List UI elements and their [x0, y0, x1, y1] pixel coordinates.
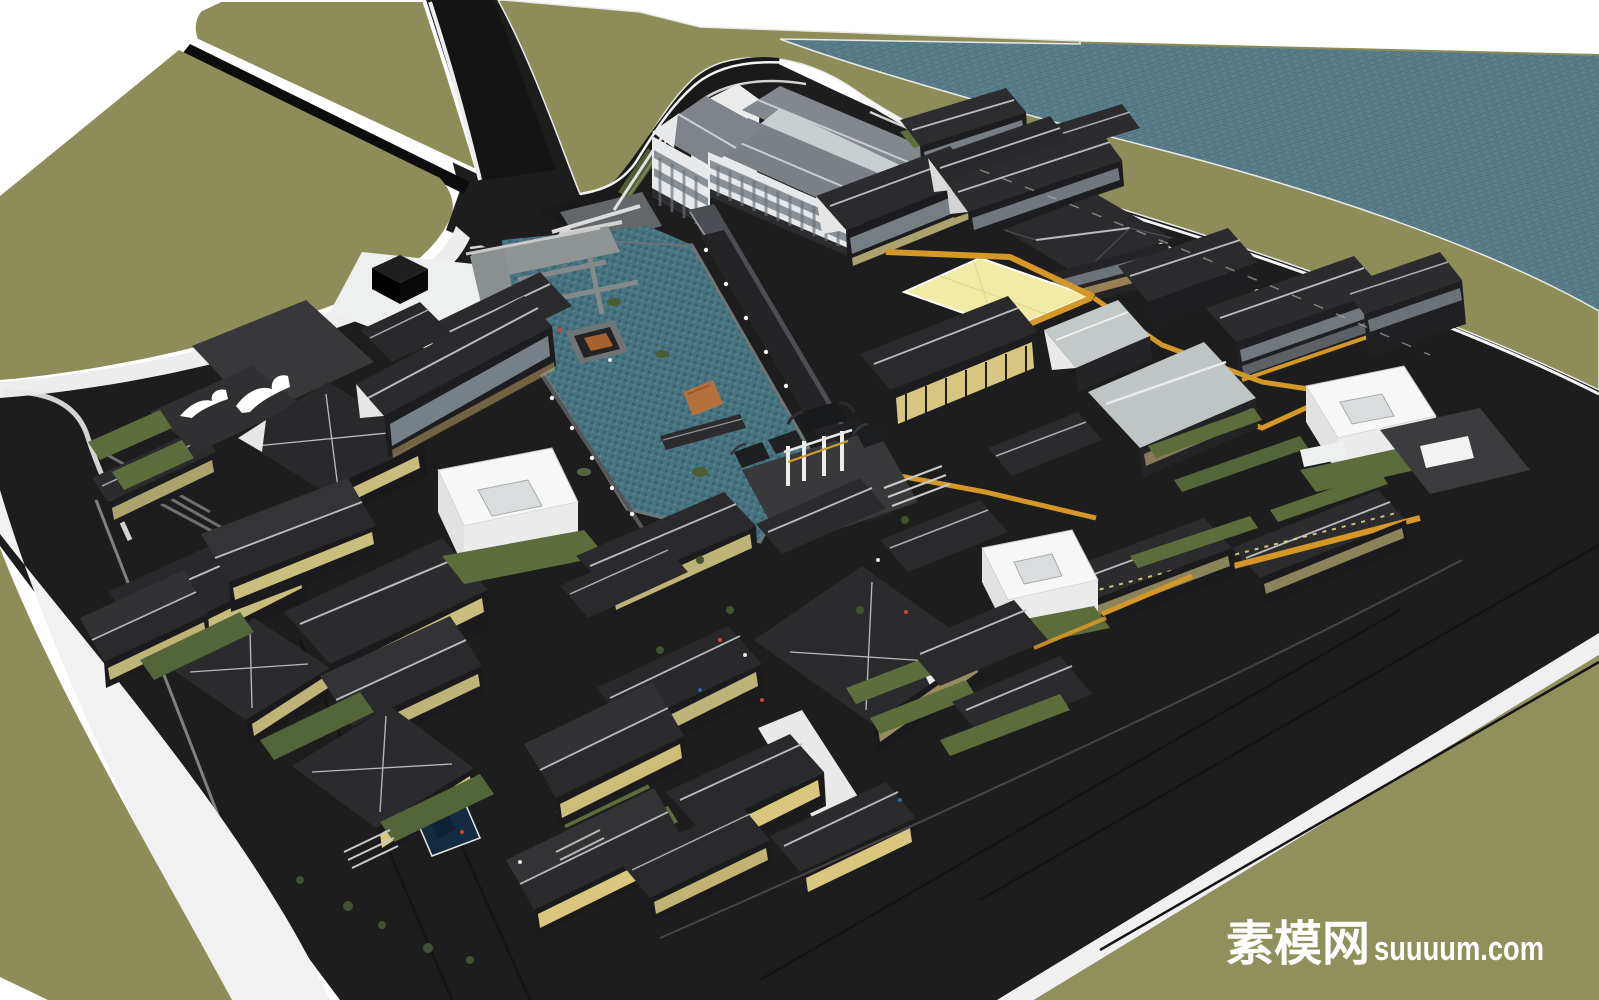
- svg-text:素模网: 素模网: [1226, 918, 1370, 971]
- svg-text:suuuum.com: suuuum.com: [1374, 930, 1544, 968]
